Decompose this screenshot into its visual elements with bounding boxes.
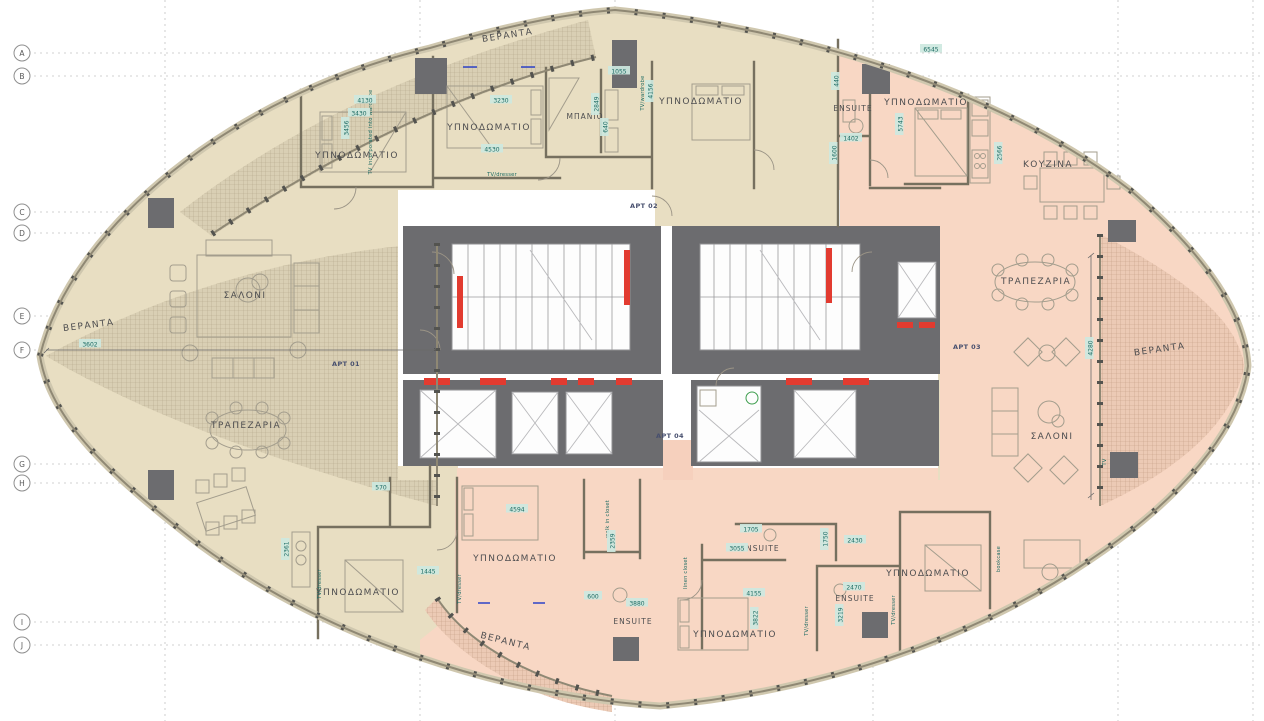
anno-tv-dresser-4: TV/dresser bbox=[457, 573, 463, 604]
dim-600: 600 bbox=[584, 591, 602, 601]
dim-2849: 2849 bbox=[591, 93, 601, 115]
grid-letter-e: E bbox=[20, 312, 25, 321]
svg-text:1402: 1402 bbox=[843, 136, 858, 143]
svg-text:4156: 4156 bbox=[648, 83, 655, 98]
dim-1750: 1750 bbox=[820, 528, 830, 550]
grid-letter-d: D bbox=[19, 229, 25, 238]
svg-text:3880: 3880 bbox=[629, 601, 644, 608]
grid-letter-i: I bbox=[21, 618, 23, 627]
dim-1705: 1705 bbox=[740, 524, 762, 534]
svg-text:3602: 3602 bbox=[82, 342, 97, 349]
dim-3456: 3456 bbox=[341, 117, 351, 139]
label-bedroom-6: ΥΠΝΟΔΩΜΑΤΙΟ bbox=[472, 554, 557, 564]
svg-text:2849: 2849 bbox=[594, 96, 601, 111]
grid-letter-j: J bbox=[20, 641, 23, 650]
svg-text:1445: 1445 bbox=[420, 569, 435, 576]
svg-text:3219: 3219 bbox=[838, 607, 845, 622]
dim-640: 640 bbox=[600, 118, 610, 136]
label-kitchen: ΚΟΥΖΙΝΑ bbox=[1023, 160, 1073, 170]
anno-tv-dresser-3: TV/dresser bbox=[891, 594, 897, 625]
label-living-room-right: ΣΑΛΟΝΙ bbox=[1031, 432, 1074, 442]
grid-letter-b: B bbox=[19, 72, 24, 81]
label-apt-03: APT 03 bbox=[953, 343, 981, 351]
svg-text:4280: 4280 bbox=[1088, 340, 1095, 355]
grid-letter-h: H bbox=[19, 479, 25, 488]
dim-2359: 2359 bbox=[607, 530, 617, 552]
dim-4530: 4530 bbox=[481, 144, 503, 154]
dim-2566: 2566 bbox=[994, 142, 1004, 164]
svg-text:440: 440 bbox=[834, 75, 841, 87]
svg-text:570: 570 bbox=[375, 485, 387, 492]
label-apt-04: APT 04 bbox=[656, 432, 684, 440]
svg-text:3230: 3230 bbox=[493, 98, 508, 105]
dim-440: 440 bbox=[831, 72, 841, 90]
anno-tv-dresser-1: TV/dresser bbox=[486, 172, 517, 178]
dim-2430: 2430 bbox=[844, 535, 866, 545]
svg-text:2430: 2430 bbox=[847, 538, 862, 545]
floor-plan-drawing: A B C D E F G H I J bbox=[0, 0, 1264, 721]
anno-tv-dresser-5: TV/dresser bbox=[317, 568, 323, 599]
floor-plan-page: A B C D E F G H I J bbox=[0, 0, 1264, 721]
svg-text:1600: 1600 bbox=[832, 145, 839, 160]
dim-2361: 2361 bbox=[281, 538, 291, 560]
svg-text:1055: 1055 bbox=[611, 69, 626, 76]
label-bedroom-1: ΥΠΝΟΔΩΜΑΤΙΟ bbox=[314, 151, 399, 161]
label-bedroom-5: ΥΠΝΟΔΩΜΑΤΙΟ bbox=[315, 588, 400, 598]
dim-570: 570 bbox=[372, 482, 390, 492]
dim-1402: 1402 bbox=[840, 133, 862, 143]
svg-text:3055: 3055 bbox=[729, 546, 744, 553]
stair-core-1 bbox=[403, 226, 661, 374]
dim-4156: 4156 bbox=[645, 80, 655, 102]
svg-text:4155: 4155 bbox=[746, 591, 761, 598]
dim-3602: 3602 bbox=[79, 339, 101, 349]
label-ensuite-bottom-3: ENSUITE bbox=[835, 594, 874, 603]
svg-text:1750: 1750 bbox=[823, 531, 830, 546]
svg-text:2359: 2359 bbox=[610, 533, 617, 548]
label-ensuite-top-right: ENSUITE bbox=[833, 104, 872, 113]
grid-letter-g: G bbox=[19, 460, 25, 469]
grid-letter-c: C bbox=[19, 208, 24, 217]
svg-text:2470: 2470 bbox=[846, 585, 861, 592]
label-dining-room-right: ΤΡΑΠΕΖΑΡΙΑ bbox=[1000, 277, 1071, 287]
label-apt-01: APT 01 bbox=[332, 360, 360, 368]
svg-text:6545: 6545 bbox=[923, 47, 938, 54]
dim-4130: 4130 bbox=[354, 95, 376, 105]
elevator-bank-left bbox=[403, 378, 663, 466]
dim-3880: 3880 bbox=[626, 598, 648, 608]
label-bedroom-2: ΥΠΝΟΔΩΜΑΤΙΟ bbox=[446, 123, 531, 133]
dim-3822: 3822 bbox=[750, 607, 760, 629]
svg-text:5743: 5743 bbox=[898, 116, 905, 131]
dim-4155: 4155 bbox=[743, 588, 765, 598]
anno-bookcase: bookcase bbox=[996, 546, 1002, 572]
label-apt-02: APT 02 bbox=[630, 202, 658, 210]
dim-1600: 1600 bbox=[829, 142, 839, 164]
svg-text:4594: 4594 bbox=[509, 507, 524, 514]
svg-text:2566: 2566 bbox=[997, 145, 1004, 160]
stair-core-2 bbox=[672, 226, 894, 374]
dim-2470: 2470 bbox=[843, 582, 865, 592]
label-living-room-left: ΣΑΛΟΝΙ bbox=[224, 291, 267, 301]
label-dining-room-left: ΤΡΑΠΕΖΑΡΙΑ bbox=[210, 421, 281, 431]
svg-text:1705: 1705 bbox=[743, 527, 758, 534]
dim-3430: 3430 bbox=[348, 108, 370, 118]
svg-text:600: 600 bbox=[587, 594, 599, 601]
label-bedroom-7: ΥΠΝΟΔΩΜΑΤΙΟ bbox=[692, 630, 777, 640]
svg-text:4530: 4530 bbox=[484, 147, 499, 154]
dim-5743: 5743 bbox=[895, 113, 905, 135]
dim-4594: 4594 bbox=[506, 504, 528, 514]
grid-letter-a: A bbox=[19, 49, 25, 58]
svg-text:2361: 2361 bbox=[284, 541, 291, 556]
dim-1445: 1445 bbox=[417, 566, 439, 576]
grid-bubbles: A B C D E F G H I J bbox=[14, 45, 30, 653]
label-ensuite-bottom-1: ENSUITE bbox=[613, 617, 652, 626]
dim-3055: 3055 bbox=[726, 543, 748, 553]
dim-3219: 3219 bbox=[835, 604, 845, 626]
label-bedroom-3: ΥΠΝΟΔΩΜΑΤΙΟ bbox=[658, 97, 743, 107]
dim-4280: 4280 bbox=[1085, 337, 1095, 359]
anno-tv: TV bbox=[1102, 458, 1108, 466]
svg-text:3822: 3822 bbox=[753, 610, 760, 625]
dim-6545: 6545 bbox=[920, 44, 942, 54]
label-bedroom-4: ΥΠΝΟΔΩΜΑΤΙΟ bbox=[883, 98, 968, 108]
label-bedroom-8: ΥΠΝΟΔΩΜΑΤΙΟ bbox=[885, 569, 970, 579]
service-shaft-right bbox=[894, 226, 940, 374]
anno-linen-closet: linen closet bbox=[683, 557, 689, 589]
anno-tv-dresser-2: TV/dresser bbox=[804, 605, 810, 636]
svg-text:640: 640 bbox=[603, 121, 610, 133]
grid-letter-f: F bbox=[20, 346, 24, 355]
elevator-bank-right bbox=[767, 378, 939, 466]
dim-1055: 1055 bbox=[608, 66, 630, 76]
svg-text:3456: 3456 bbox=[344, 120, 351, 135]
svg-text:3430: 3430 bbox=[351, 111, 366, 118]
svg-text:4130: 4130 bbox=[357, 98, 372, 105]
dim-3230: 3230 bbox=[490, 95, 512, 105]
